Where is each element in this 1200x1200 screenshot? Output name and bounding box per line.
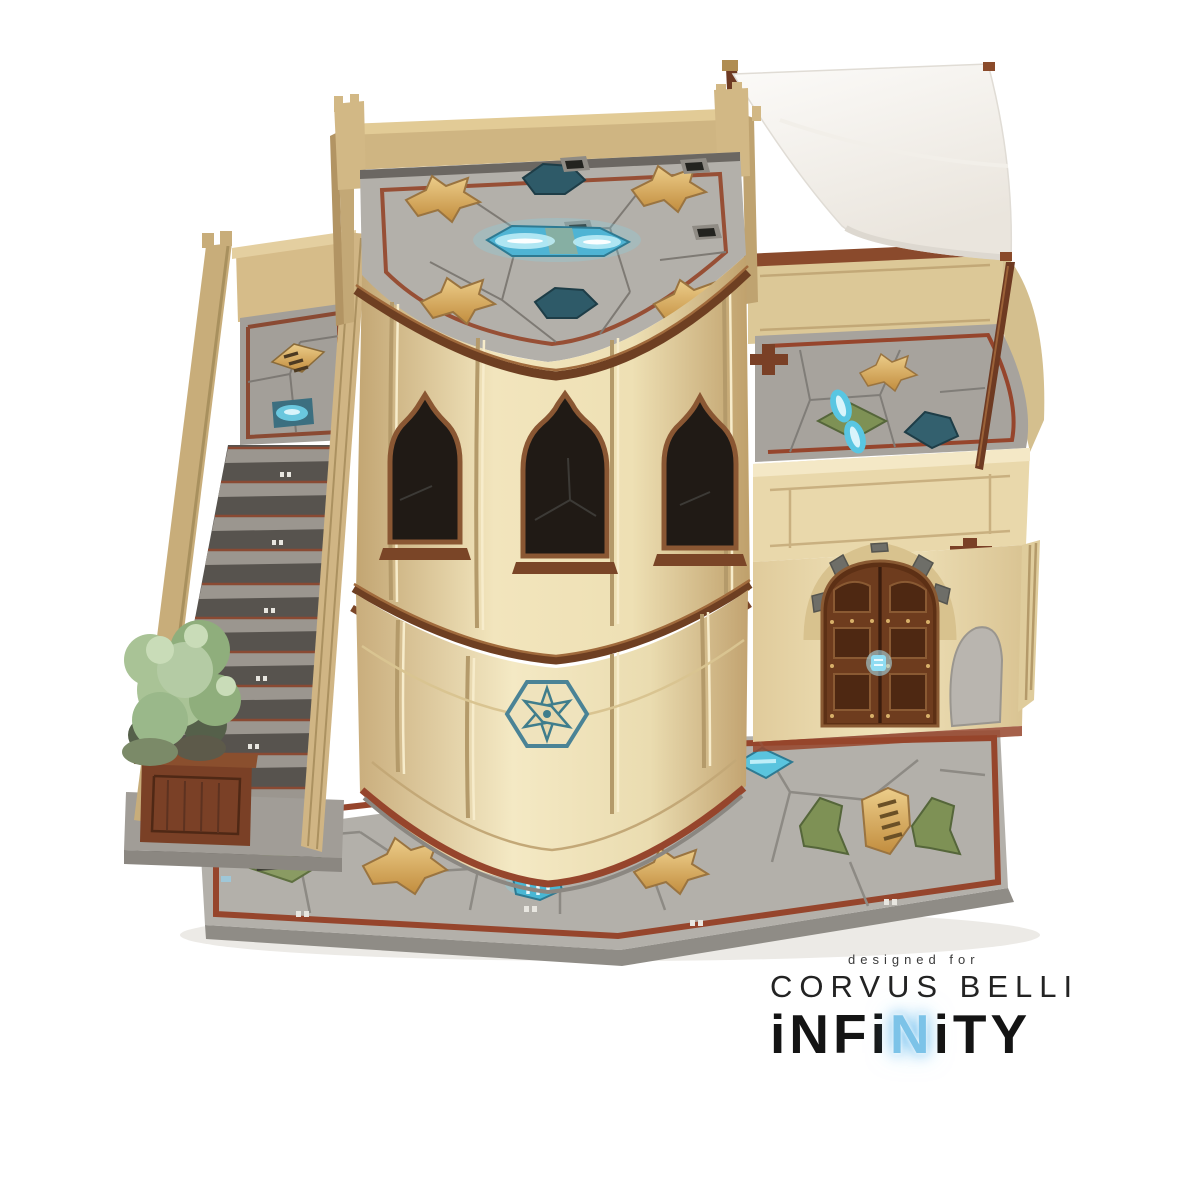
product-photo-stage: designed for CORVUS BELLI iNFiNiTY — [0, 0, 1200, 1200]
central-tower — [330, 82, 761, 892]
awning-tip-right — [983, 62, 995, 71]
infinity-logo: iNFiNiTY — [770, 1007, 1165, 1062]
awning — [733, 62, 1012, 261]
stair-rail-notch-2 — [220, 231, 232, 246]
bush — [122, 620, 241, 766]
roof-glow-bar — [473, 218, 641, 262]
staircase-wing — [122, 230, 367, 872]
awning-back-pole-cap — [722, 60, 738, 71]
landing-glow-tile — [272, 398, 314, 428]
logo-segment-left: iNFi — [770, 1003, 890, 1065]
brand-block: designed for CORVUS BELLI iNFiNiTY — [770, 952, 1165, 1062]
awning-tip-bottom — [1000, 252, 1012, 261]
rosette-emblem — [507, 682, 587, 746]
logo-segment-accent: N — [890, 1003, 934, 1065]
window-sill-left — [379, 548, 471, 560]
logo-segment-right: iTY — [934, 1003, 1032, 1065]
stair-rail-notch-1 — [202, 233, 214, 248]
window-sill-right — [653, 554, 747, 566]
door-keypad-glow — [866, 650, 892, 676]
designed-for-text: designed for — [848, 952, 1165, 967]
brand-name-text: CORVUS BELLI — [770, 969, 1165, 1005]
window-sill-center — [512, 562, 618, 574]
